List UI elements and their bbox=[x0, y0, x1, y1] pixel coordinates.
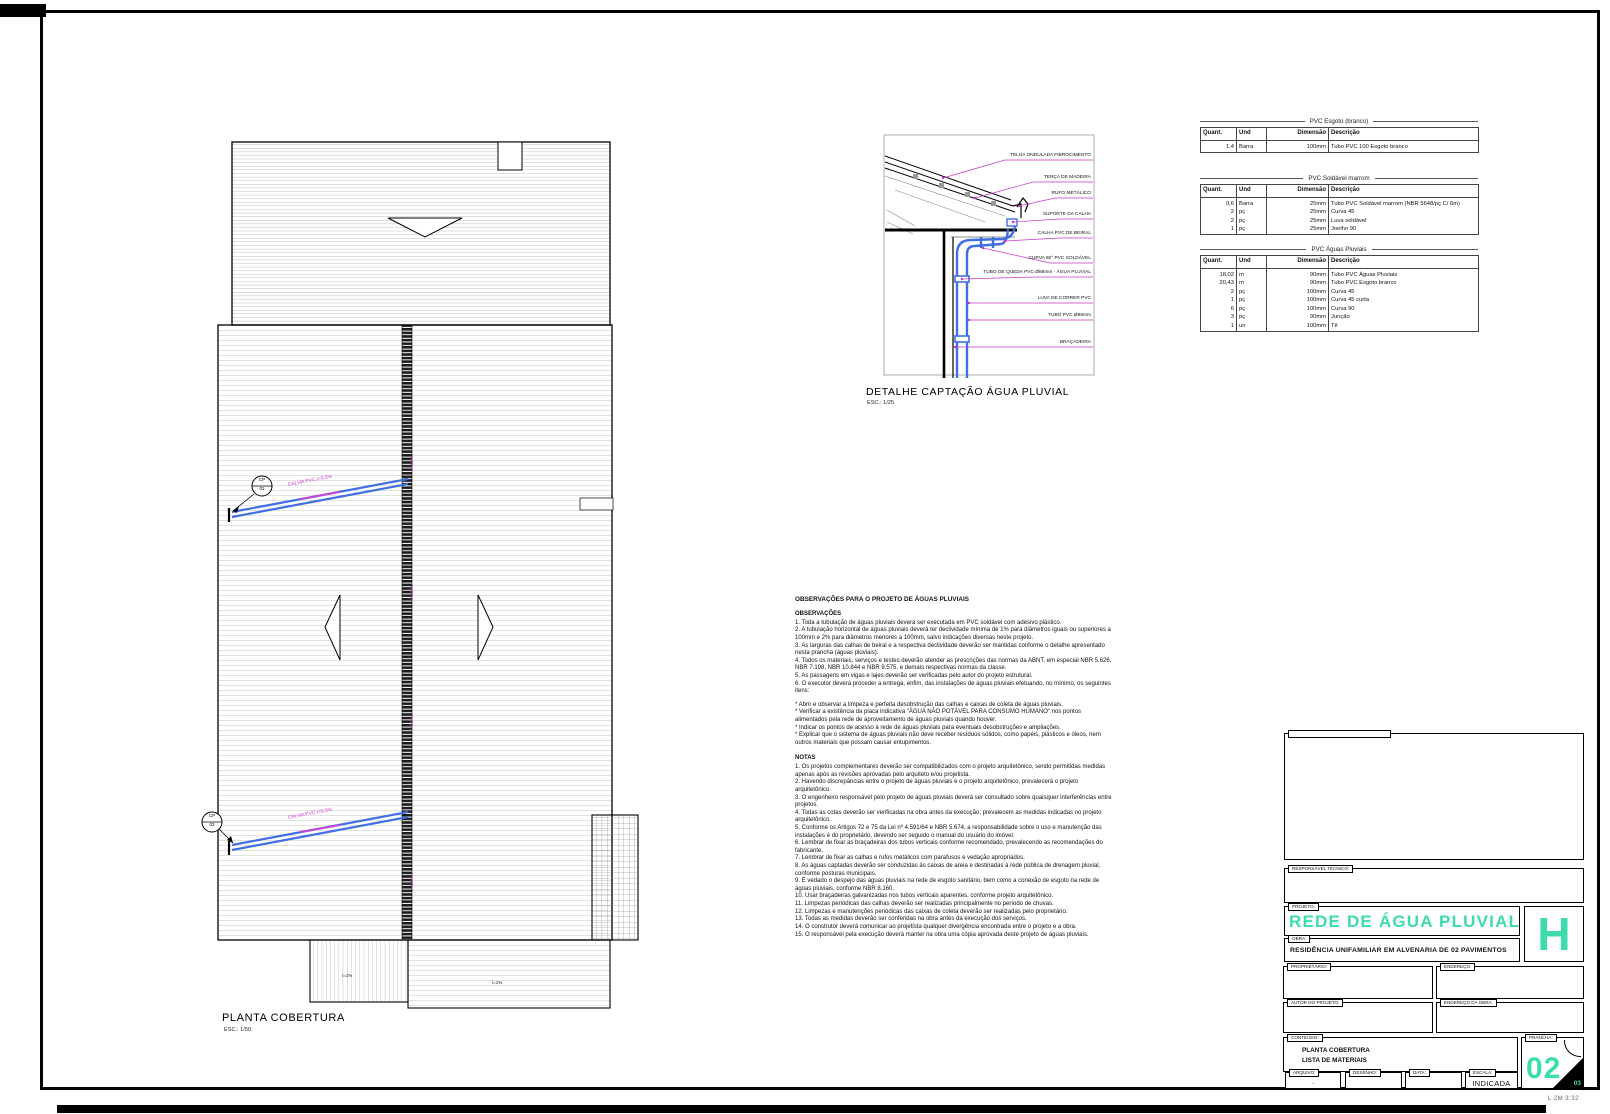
print-artifact-bottom-bar bbox=[57, 1105, 1546, 1113]
responsible-tab: RESPONSÁVEL TÉCNICO: bbox=[1288, 865, 1353, 873]
project-tab: PROJETO: bbox=[1288, 903, 1319, 911]
table-pvc-esgoto: PVC Esgoto (branco) Quant. Und Dimensão … bbox=[1200, 118, 1478, 153]
table-cell: Tubo PVC Esgoto branco bbox=[1329, 280, 1479, 289]
table-cell: pç bbox=[1237, 217, 1267, 226]
header-cell: Dimensão bbox=[1267, 185, 1329, 198]
sheet-total: 03 bbox=[1574, 1080, 1581, 1087]
table-cell: 20,43 bbox=[1201, 280, 1237, 289]
owner-box: PROPRIETÁRIO: bbox=[1283, 966, 1433, 999]
notes-title: OBSERVAÇÕES PARA O PROJETO DE ÁGUAS PLUV… bbox=[795, 596, 1115, 604]
detail-scale: ESC.: 1/25 bbox=[867, 400, 894, 406]
table-cell: Barra bbox=[1237, 198, 1267, 209]
content-tab: CONTEÚDO: bbox=[1287, 1034, 1323, 1042]
obra-tab: OBRA: bbox=[1288, 935, 1310, 943]
table-cell: pç bbox=[1237, 209, 1267, 218]
file-box: ARQUIVO: . bbox=[1285, 1072, 1341, 1089]
header-cell: Dimensão bbox=[1267, 128, 1329, 141]
table-row: 3 pç 90mm Junção bbox=[1201, 314, 1479, 323]
notes-obs-heading: OBSERVAÇÕES bbox=[795, 611, 1115, 619]
table-cell: 25mm bbox=[1267, 217, 1329, 226]
table-cell: pç bbox=[1237, 297, 1267, 306]
table-cell: m bbox=[1237, 269, 1267, 280]
table-cell: 1,4 bbox=[1201, 141, 1237, 153]
table-cell: m bbox=[1237, 280, 1267, 289]
table-cell: 25mm bbox=[1267, 226, 1329, 235]
author-box: AUTOR DO PROJETO: bbox=[1283, 1002, 1433, 1033]
content-box: CONTEÚDO: PLANTA COBERTURA LISTA DE MATE… bbox=[1283, 1037, 1518, 1072]
table-cell: 100mm bbox=[1267, 288, 1329, 297]
sheet-number-box: PRANCHA: 02 03 bbox=[1521, 1037, 1584, 1089]
project-title: REDE DE ÁGUA PLUVIAL bbox=[1289, 912, 1520, 932]
author-tab: AUTOR DO PROJETO: bbox=[1287, 999, 1343, 1007]
table-cell: 6 bbox=[1201, 305, 1237, 314]
fold-curve bbox=[1564, 1040, 1581, 1057]
table-cell: 3 bbox=[1201, 314, 1237, 323]
discipline-letter-box: H bbox=[1524, 906, 1584, 962]
table-cell: 0,6 bbox=[1201, 198, 1237, 209]
owner-tab: PROPRIETÁRIO: bbox=[1287, 963, 1331, 971]
header-cell: Descrição bbox=[1329, 128, 1479, 141]
header-cell: Und bbox=[1237, 185, 1267, 198]
table-cell: 18,02 bbox=[1201, 269, 1237, 280]
table-cell: 90mm bbox=[1267, 314, 1329, 323]
table-cell: pç bbox=[1237, 288, 1267, 297]
discipline-letter: H bbox=[1525, 907, 1583, 961]
header-cell: Dimensão bbox=[1267, 256, 1329, 269]
table-row: 1 pç 25mm Joelho 90 bbox=[1201, 226, 1479, 235]
scale-tab: ESCALA: bbox=[1469, 1069, 1496, 1077]
header-cell: Und bbox=[1237, 128, 1267, 141]
table-cell: Joelho 90 bbox=[1329, 226, 1479, 235]
table-cell: 25mm bbox=[1267, 209, 1329, 218]
table-cell: 100mm bbox=[1267, 141, 1329, 153]
table-cell: Curva 45 curta bbox=[1329, 297, 1479, 306]
drawing-tab: DESENHO: bbox=[1349, 1069, 1381, 1077]
table-pvc-aguas-pluviais: PVC Águas Pluviais Quant. Und Dimensão D… bbox=[1200, 246, 1478, 332]
table-cell: pç bbox=[1237, 226, 1267, 235]
notes-notas-heading: NOTAS bbox=[795, 755, 1115, 763]
detail-drawing bbox=[855, 130, 1100, 380]
header-cell: Quant. bbox=[1201, 128, 1237, 141]
table-row: 2 pç 25mm Luva soldável bbox=[1201, 217, 1479, 226]
table-cell: 1 bbox=[1201, 297, 1237, 306]
table-cell: 25mm bbox=[1267, 198, 1329, 209]
table-cell: Tubo PVC Águas Pluviais bbox=[1329, 269, 1479, 280]
drawing-sheet: L 2M 3:32 bbox=[0, 0, 1610, 1114]
table-title: PVC Águas Pluviais bbox=[1311, 246, 1366, 253]
obra-title: RESIDÊNCIA UNIFAMILIAR EM ALVENARIA DE 0… bbox=[1290, 947, 1507, 954]
table-cell: Barra bbox=[1237, 141, 1267, 153]
stamp-box bbox=[1284, 733, 1584, 860]
plot-stamp: L 2M 3:32 bbox=[1548, 1096, 1579, 1102]
table-title: PVC Soldável marrom bbox=[1308, 175, 1369, 182]
header-cell: Quant. bbox=[1201, 185, 1237, 198]
roof-plan-drawing bbox=[200, 130, 660, 1020]
file-tab: ARQUIVO: bbox=[1289, 1069, 1319, 1077]
plan-title: PLANTA COBERTURA bbox=[222, 1012, 345, 1024]
title-block: RESPONSÁVEL TÉCNICO: PROJETO: REDE DE ÁG… bbox=[1283, 733, 1586, 1089]
table-cell: Tubo PVC 100 Esgoto branco bbox=[1329, 141, 1479, 153]
table-row: 2 pç 100mm Curva 45 bbox=[1201, 288, 1479, 297]
table-cell: 90mm bbox=[1267, 269, 1329, 280]
table-cell: Tê bbox=[1329, 322, 1479, 331]
header-cell: Descrição bbox=[1329, 185, 1479, 198]
notes-stars-body: * Abrir e observar a limpeza e perfeita … bbox=[795, 702, 1115, 748]
date-tab: DATA: bbox=[1409, 1069, 1430, 1077]
table-cell: 90mm bbox=[1267, 280, 1329, 289]
date-box: DATA: bbox=[1405, 1072, 1462, 1089]
address-tab: ENDEREÇO: bbox=[1440, 963, 1475, 971]
table-cell: Tubo PVC Soldável marrom (NBR 5648/pç C/… bbox=[1329, 198, 1479, 209]
site-address-tab: ENDEREÇO DA OBRA: bbox=[1440, 999, 1497, 1007]
table-cell: 1 bbox=[1201, 322, 1237, 331]
file-value: . bbox=[1286, 1079, 1340, 1086]
table-cell: Curva 45 bbox=[1329, 288, 1479, 297]
table-cell: pç bbox=[1237, 314, 1267, 323]
table-cell: 2 bbox=[1201, 288, 1237, 297]
table-cell: Curva 90 bbox=[1329, 305, 1479, 314]
header-cell: Quant. bbox=[1201, 256, 1237, 269]
content-line: LISTA DE MATERIAIS bbox=[1302, 1056, 1370, 1066]
table-row: 1,4 Barra 100mm Tubo PVC 100 Esgoto bran… bbox=[1201, 141, 1479, 153]
table-cell: 2 bbox=[1201, 209, 1237, 218]
table-row: 0,6 Barra 25mm Tubo PVC Soldável marrom … bbox=[1201, 198, 1479, 209]
content-line: PLANTA COBERTURA bbox=[1302, 1046, 1370, 1056]
table-cell: 100mm bbox=[1267, 322, 1329, 331]
table-cell: Curva 45 bbox=[1329, 209, 1479, 218]
header-cell: Und bbox=[1237, 256, 1267, 269]
table-cell: 2 bbox=[1201, 217, 1237, 226]
scale-box: ESCALA: INDICADA bbox=[1465, 1072, 1518, 1089]
notes-block: OBSERVAÇÕES PARA O PROJETO DE ÁGUAS PLUV… bbox=[795, 596, 1115, 939]
header-cell: Descrição bbox=[1329, 256, 1479, 269]
table-row: 18,02 m 90mm Tubo PVC Águas Pluviais bbox=[1201, 269, 1479, 280]
table-cell: un bbox=[1237, 322, 1267, 331]
plan-scale: ESC.: 1/50 bbox=[224, 1027, 251, 1033]
notes-obs-body: 1. Toda a tubulação de águas pluviais de… bbox=[795, 620, 1115, 696]
address-box: ENDEREÇO: bbox=[1436, 966, 1584, 999]
obra-box: OBRA: RESIDÊNCIA UNIFAMILIAR EM ALVENARI… bbox=[1284, 938, 1520, 962]
notes-notas-body: 1. Os projetos complementares deverão se… bbox=[795, 764, 1115, 939]
table-cell: Junção bbox=[1329, 314, 1479, 323]
table-pvc-soldavel: PVC Soldável marrom Quant. Und Dimensão … bbox=[1200, 175, 1478, 235]
table-row: 1 un 100mm Tê bbox=[1201, 322, 1479, 331]
table-row: 20,43 m 90mm Tubo PVC Esgoto branco bbox=[1201, 280, 1479, 289]
table-title: PVC Esgoto (branco) bbox=[1310, 118, 1368, 125]
scale-value: INDICADA bbox=[1466, 1079, 1517, 1088]
table-row: 6 pç 100mm Curva 90 bbox=[1201, 305, 1479, 314]
responsible-box: RESPONSÁVEL TÉCNICO: bbox=[1284, 868, 1584, 903]
site-address-box: ENDEREÇO DA OBRA: bbox=[1436, 1002, 1584, 1033]
drawing-box: DESENHO: bbox=[1345, 1072, 1402, 1089]
table-cell: pç bbox=[1237, 305, 1267, 314]
stamp-tab bbox=[1288, 730, 1391, 738]
table-cell: Luva soldável bbox=[1329, 217, 1479, 226]
sheet-tab: PRANCHA: bbox=[1525, 1034, 1557, 1042]
table-cell: 100mm bbox=[1267, 297, 1329, 306]
detail-title: DETALHE CAPTAÇÃO ÁGUA PLUVIAL bbox=[866, 386, 1069, 398]
table-cell: 1 bbox=[1201, 226, 1237, 235]
table-row: 1 pç 100mm Curva 45 curta bbox=[1201, 297, 1479, 306]
project-title-box: PROJETO: REDE DE ÁGUA PLUVIAL bbox=[1284, 906, 1520, 936]
table-cell: 100mm bbox=[1267, 305, 1329, 314]
table-row: 2 pç 25mm Curva 45 bbox=[1201, 209, 1479, 218]
